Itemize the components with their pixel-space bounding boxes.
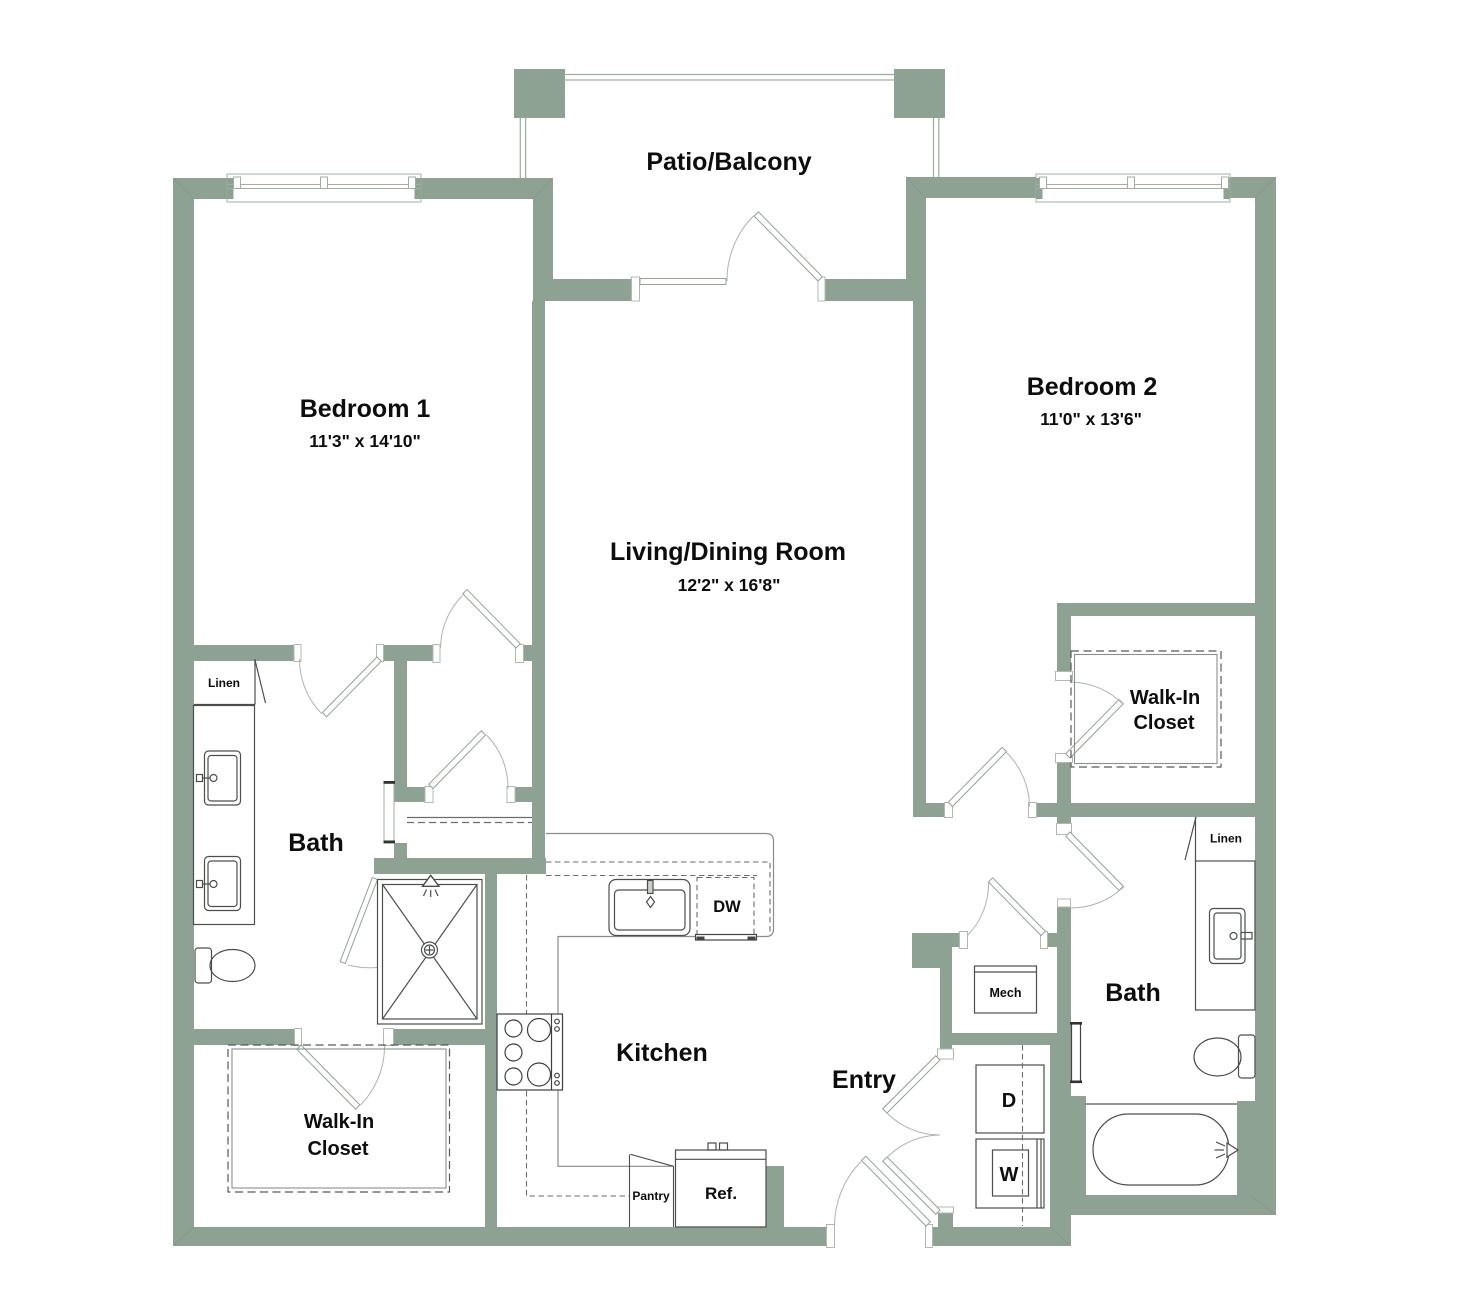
svg-text:Kitchen: Kitchen (616, 1039, 708, 1067)
svg-text:Closet: Closet (307, 1138, 368, 1160)
svg-text:Linen: Linen (1210, 832, 1242, 846)
svg-text:Closet: Closet (1133, 712, 1194, 734)
svg-text:Entry: Entry (832, 1066, 896, 1094)
svg-text:Bath: Bath (288, 829, 344, 857)
svg-text:11'3" x 14'10": 11'3" x 14'10" (309, 431, 421, 451)
svg-text:Walk-In: Walk-In (304, 1111, 374, 1133)
svg-text:Patio/Balcony: Patio/Balcony (646, 148, 811, 176)
svg-text:Living/Dining Room: Living/Dining Room (610, 538, 846, 566)
svg-text:Pantry: Pantry (632, 1189, 670, 1203)
svg-text:Bath: Bath (1105, 979, 1161, 1007)
svg-text:Bedroom 2: Bedroom 2 (1027, 373, 1158, 401)
svg-text:11'0" x 13'6": 11'0" x 13'6" (1040, 409, 1142, 429)
svg-text:Walk-In: Walk-In (1130, 687, 1200, 709)
svg-text:W: W (1000, 1164, 1019, 1186)
svg-text:12'2" x 16'8": 12'2" x 16'8" (678, 575, 781, 595)
svg-text:Ref.: Ref. (705, 1184, 737, 1203)
svg-text:D: D (1002, 1090, 1016, 1112)
svg-text:Mech: Mech (990, 986, 1022, 1000)
svg-text:Linen: Linen (208, 676, 240, 690)
svg-text:DW: DW (713, 898, 741, 916)
svg-text:Bedroom 1: Bedroom 1 (300, 395, 431, 423)
